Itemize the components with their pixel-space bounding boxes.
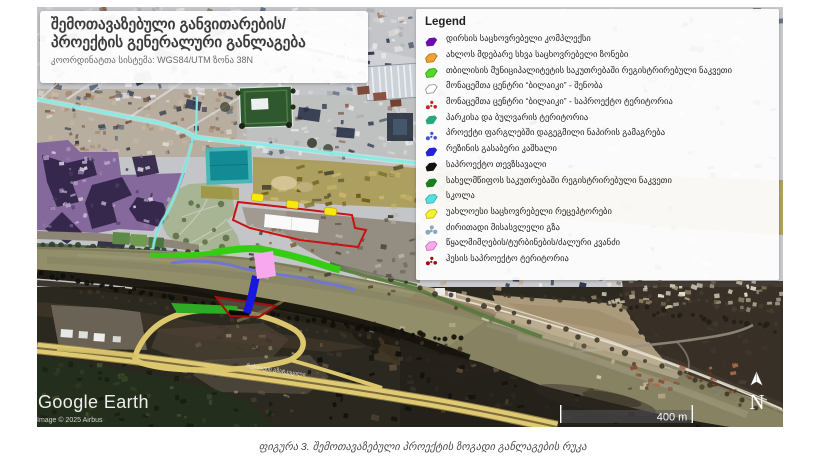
svg-text:Google Earth: Google Earth: [38, 392, 149, 412]
svg-text:Image © 2025 Airbus: Image © 2025 Airbus: [37, 416, 103, 424]
svg-text:N: N: [749, 390, 764, 414]
svg-text:400 m: 400 m: [657, 412, 688, 424]
